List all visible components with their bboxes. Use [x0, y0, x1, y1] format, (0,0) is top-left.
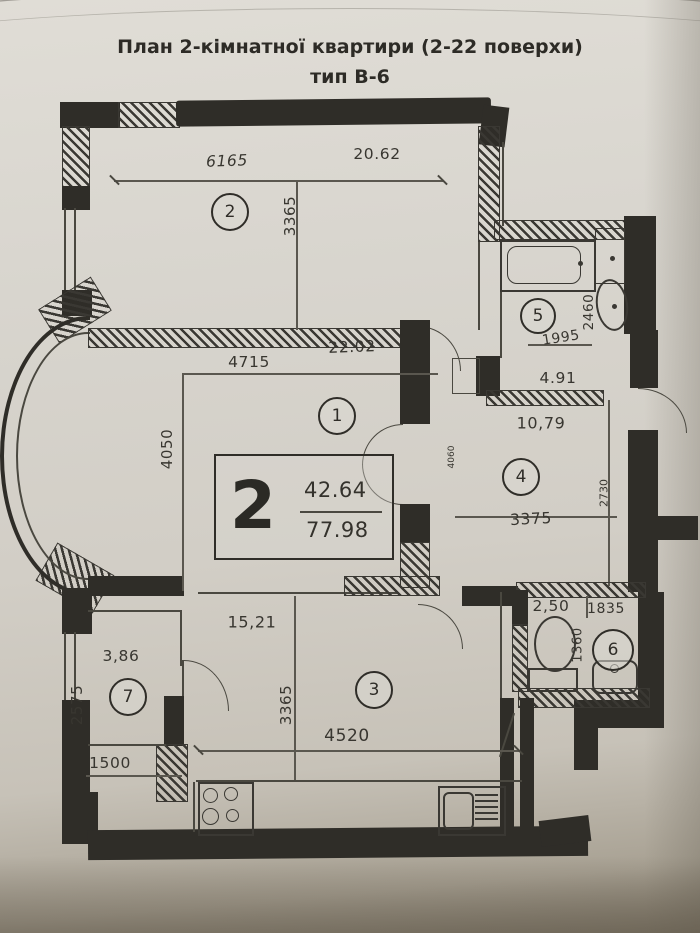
room7-door-arc [184, 660, 229, 711]
bathtub-inner [507, 246, 581, 284]
room1-height-dim: 4050 [158, 429, 176, 470]
room3-area: 15,21 [228, 613, 277, 632]
kitchen-sink-drainer [475, 794, 498, 824]
scan-shade-bottom [0, 856, 700, 933]
room1-number: 1 [332, 406, 343, 426]
kitchen-door-arc [418, 604, 463, 649]
hall-small-dim: 4060 [447, 446, 457, 469]
wall-hall-kitchen [462, 586, 518, 606]
room5-height-dim: 2460 [581, 294, 597, 331]
bathtub-drain [578, 261, 583, 266]
room3-height-dim: 3365 [277, 685, 295, 726]
wall-left-hatch-1 [62, 126, 90, 188]
dim-line-4520 [198, 750, 520, 752]
room3-width-dim: 4520 [324, 726, 370, 746]
room1-width-dim: 4715 [228, 353, 270, 371]
room5-area: 4.91 [540, 369, 577, 387]
bay-window [0, 316, 90, 596]
summary-fraction-line [300, 511, 382, 513]
summary-rooms-count: 2 [230, 462, 276, 550]
wall-room1-hall-top [400, 320, 430, 424]
room5-number: 5 [533, 306, 544, 326]
room4-width-dim: 3375 [510, 509, 553, 529]
summary-total-area: 77.98 [306, 518, 369, 542]
room7-right-line [180, 610, 182, 666]
wall-wc-left-top [512, 590, 528, 626]
room4-height-dim: 2730 [598, 479, 611, 507]
window-left-line-1 [64, 208, 66, 292]
room4-area: 10,79 [517, 414, 566, 433]
summary-living-area: 42.64 [304, 478, 367, 502]
wall-right-stub [652, 516, 698, 540]
window-left-line-3 [64, 632, 66, 702]
toilet-tank [528, 668, 578, 692]
wall-top-main [176, 97, 491, 126]
room5-number-badge: 5 [520, 298, 556, 334]
wall-right-1 [630, 330, 658, 388]
kitchen-sink-basin [443, 792, 474, 830]
room6-number: 6 [608, 640, 619, 660]
wall-room2-right [478, 126, 500, 242]
dim-line-4715 [182, 373, 438, 375]
wall-wc-left [512, 624, 528, 692]
kitchen-right-line [500, 592, 502, 700]
room7-width-dim: 1500 [89, 754, 131, 772]
room6-number-badge: 6 [592, 629, 634, 671]
stove-left-tick [193, 782, 195, 832]
room2-area: 20.62 [353, 145, 400, 163]
wall-room7-right-hatch [156, 744, 188, 802]
stove-burner-4 [226, 809, 239, 822]
room7-bottom-line [88, 744, 166, 746]
wall-left-block-1 [62, 186, 90, 210]
room4-number-badge: 4 [502, 458, 540, 496]
stove-burner-1 [203, 788, 218, 803]
room3-number: 3 [369, 680, 380, 700]
wall-room1-bottom-hatch [344, 576, 440, 596]
stove-burner-2 [224, 787, 238, 801]
washbasin-dot [612, 304, 617, 309]
wall-bath-bottom [486, 390, 604, 406]
bath-shelf-dot [610, 256, 615, 261]
wall-room1-hall-mid [400, 504, 430, 542]
room2-number: 2 [225, 202, 236, 222]
room2-number-badge: 2 [211, 193, 249, 231]
plan-title: План 2-кімнатної квартири (2-22 поверхи) [0, 36, 700, 58]
wall-right-2 [628, 430, 658, 592]
room4-number: 4 [516, 467, 527, 487]
room6-height-dim: 1360 [571, 627, 586, 662]
shaft-strip-2 [520, 698, 534, 832]
wall-room2-right-thin [478, 242, 480, 330]
room7-area: 3,86 [103, 647, 140, 665]
wall-wc-top [516, 582, 646, 598]
wall-top-hatch [118, 102, 180, 128]
window-left-line-2 [74, 208, 76, 292]
floor-plan-scan: План 2-кімнатної квартири (2-22 поверхи)… [0, 0, 700, 933]
room6-width-dim: 1835 [587, 601, 625, 617]
room2-height-dim: 3365 [281, 196, 299, 237]
wall-lobby-right-thin [502, 142, 504, 226]
wall-right-bath [624, 216, 656, 334]
room6-area: 2,50 [533, 597, 570, 615]
wall-below-wc-v [574, 722, 598, 770]
dim-ext-room1 [182, 373, 184, 591]
plan-subtitle: тип В-6 [0, 66, 700, 88]
room7-number-badge: 7 [109, 678, 147, 716]
wall-room7-right [164, 696, 184, 746]
room7-top-line [88, 610, 182, 612]
bath-niche [452, 358, 480, 394]
stove-burner-3 [202, 808, 219, 825]
room1-area: 22.02 [328, 337, 376, 357]
room1-number-badge: 1 [318, 397, 356, 435]
wall-top-left [60, 102, 120, 128]
room7-number: 7 [123, 687, 134, 707]
room2-width-dim: 6165 [206, 151, 248, 170]
room3-number-badge: 3 [355, 671, 393, 709]
dim-line-1500 [86, 775, 182, 777]
dim-line-6165 [114, 180, 444, 182]
room7-height-dim: 2575 [68, 685, 86, 726]
wall-room1-bottom-left [88, 576, 184, 596]
summary-box: 2 42.64 77.98 [214, 454, 394, 560]
